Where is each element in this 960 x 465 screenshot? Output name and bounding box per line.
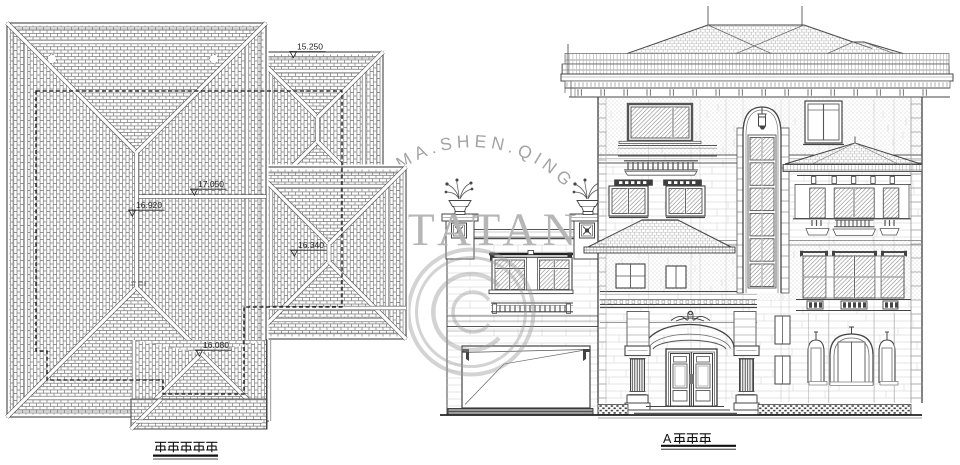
svg-text:TATAN: TATAN [406, 204, 583, 256]
svg-text:16.340: 16.340 [298, 240, 324, 250]
svg-text:15.250: 15.250 [297, 42, 323, 52]
svg-text:A: A [663, 432, 672, 446]
svg-text:17.050: 17.050 [198, 179, 224, 189]
svg-text:16.920: 16.920 [136, 200, 162, 210]
svg-text:16.080: 16.080 [203, 340, 229, 350]
